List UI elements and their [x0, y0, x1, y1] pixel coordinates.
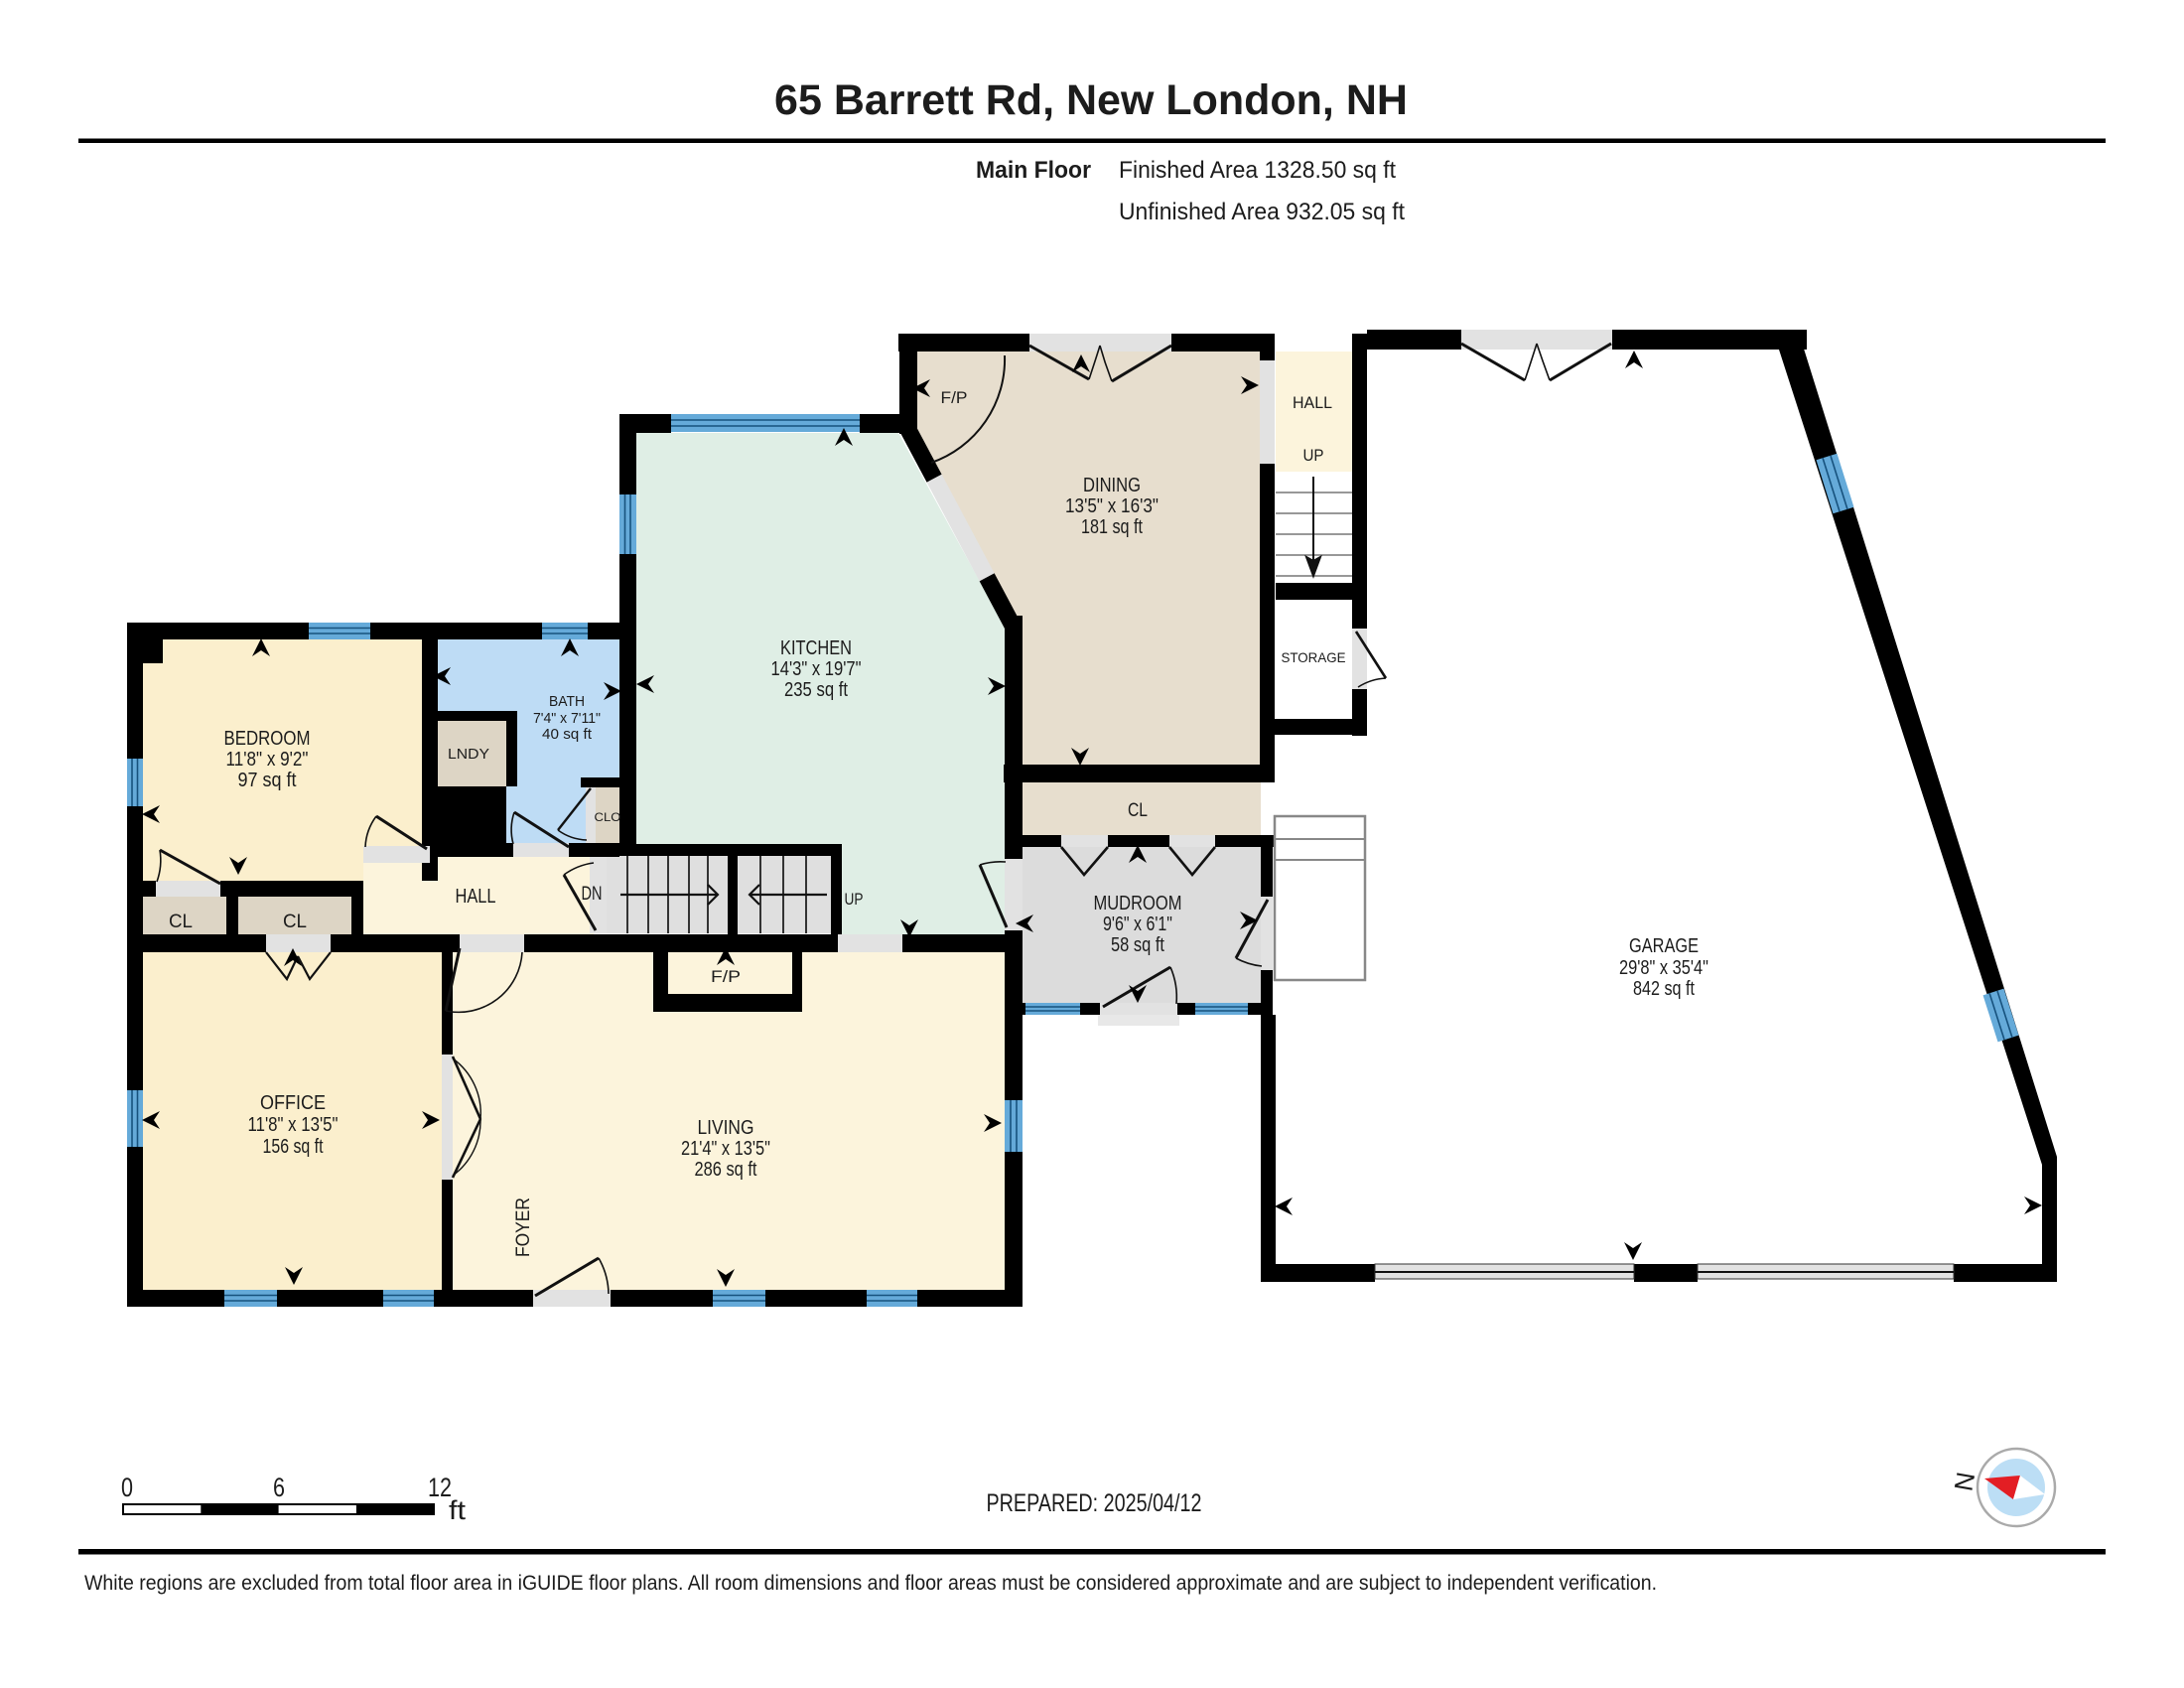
svg-text:14'3" x 19'7": 14'3" x 19'7" — [771, 658, 862, 680]
svg-text:11'8" x 13'5": 11'8" x 13'5" — [248, 1114, 339, 1136]
svg-text:DN: DN — [582, 884, 603, 905]
svg-text:181 sq ft: 181 sq ft — [1081, 516, 1143, 538]
svg-text:FOYER: FOYER — [513, 1197, 534, 1257]
svg-text:842 sq ft: 842 sq ft — [1633, 978, 1695, 1000]
svg-text:97 sq ft: 97 sq ft — [238, 770, 297, 791]
svg-text:White regions are excluded fro: White regions are excluded from total fl… — [84, 1572, 1657, 1595]
svg-text:ft: ft — [449, 1495, 467, 1525]
svg-text:13'5" x 16'3": 13'5" x 16'3" — [1065, 495, 1159, 517]
svg-text:STORAGE: STORAGE — [1282, 649, 1346, 665]
svg-text:DINING: DINING — [1083, 475, 1141, 496]
svg-text:9'6" x 6'1": 9'6" x 6'1" — [1103, 914, 1172, 935]
svg-text:F/P: F/P — [941, 388, 968, 407]
svg-text:BATH: BATH — [549, 693, 585, 710]
svg-text:OFFICE: OFFICE — [260, 1092, 326, 1114]
svg-text:BEDROOM: BEDROOM — [224, 728, 311, 750]
svg-text:KITCHEN: KITCHEN — [780, 637, 852, 659]
svg-text:58 sq ft: 58 sq ft — [1111, 934, 1164, 956]
svg-text:Finished Area 1328.50 sq ft: Finished Area 1328.50 sq ft — [1119, 157, 1396, 184]
svg-text:MUDROOM: MUDROOM — [1094, 893, 1182, 914]
svg-text:CLO: CLO — [595, 810, 621, 824]
svg-text:PREPARED: 2025/04/12: PREPARED: 2025/04/12 — [987, 1489, 1202, 1517]
svg-text:65 Barrett Rd, New London, NH: 65 Barrett Rd, New London, NH — [774, 76, 1408, 124]
svg-text:286 sq ft: 286 sq ft — [695, 1159, 757, 1181]
svg-text:21'4" x 13'5": 21'4" x 13'5" — [681, 1138, 770, 1160]
svg-text:Unfinished Area 932.05 sq ft: Unfinished Area 932.05 sq ft — [1119, 199, 1405, 225]
svg-text:HALL: HALL — [456, 886, 496, 908]
svg-text:7'4" x 7'11": 7'4" x 7'11" — [533, 710, 601, 727]
svg-text:156 sq ft: 156 sq ft — [263, 1136, 324, 1158]
svg-text:LIVING: LIVING — [698, 1117, 754, 1139]
svg-text:29'8" x 35'4": 29'8" x 35'4" — [1619, 957, 1708, 979]
svg-text:Main Floor: Main Floor — [976, 157, 1091, 184]
svg-text:GARAGE: GARAGE — [1629, 935, 1699, 957]
svg-text:CL: CL — [283, 912, 307, 932]
svg-text:0: 0 — [121, 1473, 133, 1502]
svg-text:HALL: HALL — [1293, 393, 1332, 412]
svg-text:40 sq ft: 40 sq ft — [542, 726, 593, 743]
svg-text:11'8" x 9'2": 11'8" x 9'2" — [226, 749, 309, 771]
svg-text:235 sq ft: 235 sq ft — [784, 679, 848, 701]
svg-text:6: 6 — [273, 1473, 285, 1502]
svg-text:F/P: F/P — [711, 967, 741, 986]
svg-text:UP: UP — [1303, 446, 1324, 465]
svg-text:CL: CL — [169, 912, 193, 932]
svg-text:UP: UP — [845, 890, 864, 909]
svg-text:CL: CL — [1128, 800, 1148, 821]
svg-text:LNDY: LNDY — [448, 746, 489, 763]
